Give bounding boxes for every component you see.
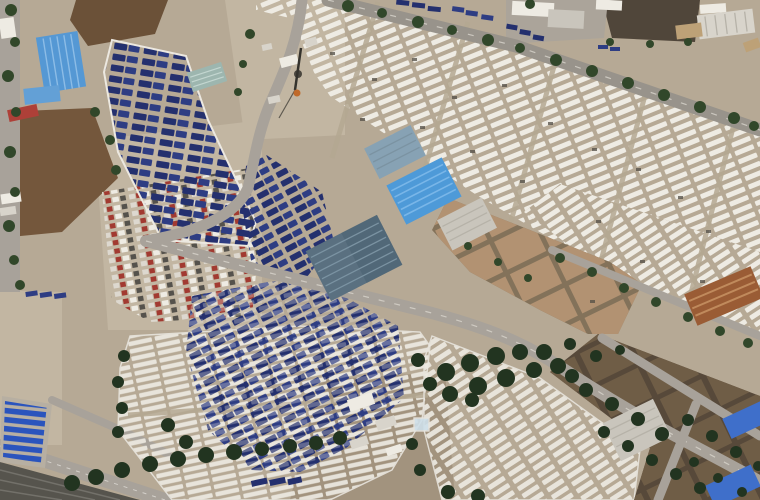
aerial-scene [0,0,760,500]
building-white-tr-3 [700,3,727,14]
shed-lightblue [414,418,429,431]
building-white-tr-2 [596,0,622,11]
building-gray-tr [548,9,585,29]
gate-orange-structure [294,90,301,97]
building-white-left [0,17,16,39]
satellite-image [0,0,760,500]
warehouse-blue-topleft [36,31,86,93]
solar-array [3,401,48,463]
